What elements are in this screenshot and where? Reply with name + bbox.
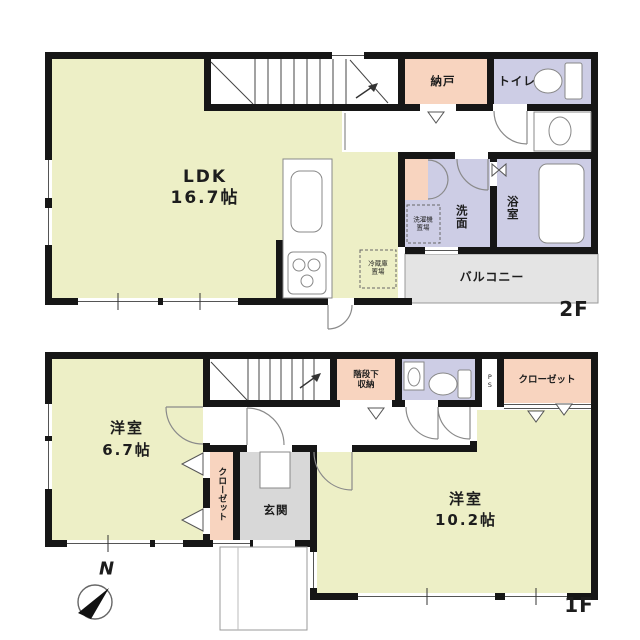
1f-room67-label: 洋室 <box>110 420 144 438</box>
2f-balcony-label: バルコニー <box>460 270 525 284</box>
1f-hall-door <box>438 407 470 439</box>
2f-kitchen-counter <box>283 159 332 298</box>
1f-storage-door-mark <box>368 408 384 419</box>
2f-toilet-bowl-icon <box>534 69 562 93</box>
1f-toilet-bowl-icon <box>429 373 457 395</box>
2f-ldk-label: LDK <box>183 167 227 187</box>
2f-toilet-tank-icon <box>565 63 582 99</box>
1f-entrance-porch <box>220 547 307 630</box>
1f-entrance-hall-door <box>247 408 284 445</box>
2f-linen-cabinet-face <box>405 159 428 200</box>
2f-bathtub-icon <box>539 164 584 243</box>
1f-toilet-door <box>406 407 438 439</box>
1f-shoe-cabinet <box>260 452 290 488</box>
1f-room67-size: 6.7帖 <box>102 442 152 460</box>
1f-closet-top-label: クローゼット <box>518 374 575 385</box>
1f-room102-label: 洋室 <box>449 491 483 509</box>
2f-washer-label: 洗濯機 置場 <box>413 216 433 231</box>
2f-ldk-exterior-door <box>328 305 352 329</box>
1f-toilet-tank-icon <box>458 370 471 398</box>
2f-toilet-label: トイレ <box>498 75 536 89</box>
1f-pipe-space-label: PS <box>485 373 493 389</box>
1f-closet-side-label: クローゼット <box>216 467 227 521</box>
floorplan-drawing <box>0 0 640 640</box>
2f-floor-label: 2F <box>559 298 589 322</box>
2f-stairs-area <box>211 59 398 104</box>
1f-floor-label: 1F <box>564 594 594 618</box>
2f-fridge-label: 冷蔵庫 置場 <box>368 260 388 275</box>
compass-north-label: N <box>99 558 115 579</box>
1f-entrance-label: 玄関 <box>264 504 289 518</box>
compass-icon <box>78 585 112 619</box>
1f-under-stairs-label: 階段下 収納 <box>353 370 379 390</box>
2f-bathroom-label: 浴室 <box>505 196 519 221</box>
2f-ldk-size: 16.7帖 <box>171 188 240 208</box>
2f-storage-label: 納戸 <box>431 75 456 89</box>
2f-washbasin-icon <box>549 117 571 145</box>
2f-washroom-label: 洗面 <box>454 205 468 230</box>
1f-room102-size: 10.2帖 <box>435 512 497 530</box>
floorplan-canvas: LDK 16.7帖 納戸 トイレ 洗面 浴室 バルコニー 洗濯機 置場 冷蔵庫 … <box>0 0 640 640</box>
